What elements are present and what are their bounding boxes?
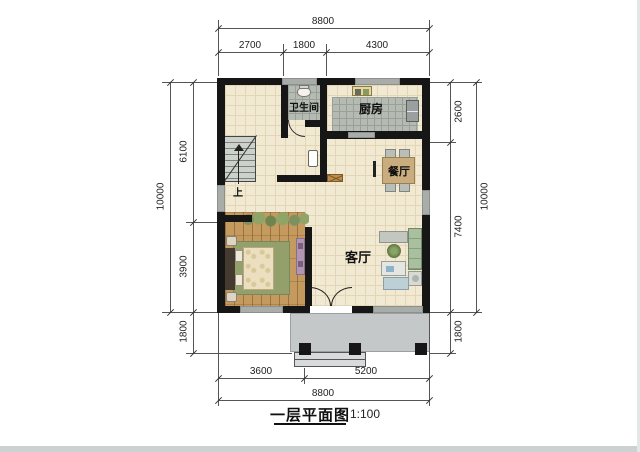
window-bottom-living — [373, 306, 423, 313]
dim-top-seg3: 4300 — [352, 40, 402, 51]
exterior-wall-bottom — [217, 306, 240, 313]
fridge-icon — [406, 100, 419, 122]
window-top-left — [282, 78, 317, 85]
dining-chair — [385, 183, 396, 192]
window-right-living — [422, 190, 430, 215]
hall-wall-vertical — [320, 127, 327, 182]
bathroom-label: 卫生间 — [283, 99, 325, 114]
dim-left-seg1: 6100 — [179, 122, 190, 182]
dim-left-total: 10000 — [156, 167, 167, 227]
drawing-title: 一层平面图 — [268, 404, 352, 425]
toilet-tank — [299, 85, 309, 89]
dim-top-seg2: 1800 — [279, 40, 329, 51]
dim-top-total: 8800 — [298, 16, 348, 27]
bathroom-wall-bottom — [305, 120, 327, 127]
extension-line — [218, 313, 219, 406]
stair-up-label: 上 — [228, 184, 248, 199]
dining-sideboard — [373, 161, 376, 177]
nightstand — [226, 236, 237, 246]
porch-column-right — [415, 343, 427, 355]
entry-cabinet — [327, 174, 343, 182]
planter-divider — [243, 212, 309, 227]
pillow — [235, 250, 243, 262]
stair-arrow-line — [238, 148, 239, 184]
extension-line — [429, 313, 430, 406]
bed — [243, 247, 274, 290]
extension-line — [430, 353, 456, 354]
dim-right-total: 10000 — [480, 167, 491, 227]
hall-wall-horizontal — [277, 175, 327, 182]
dimension-line-left-total — [170, 82, 171, 312]
extension-line — [186, 353, 292, 354]
stair-arrow-head — [234, 144, 244, 151]
bedroom-wall-top — [225, 215, 252, 222]
exterior-wall-bottom — [352, 306, 373, 313]
living-plant — [387, 244, 401, 258]
dim-top-seg1: 2700 — [225, 40, 275, 51]
kitchen-label: 厨房 — [346, 100, 396, 117]
dim-left-seg2: 3900 — [179, 237, 190, 297]
dim-bottom-seg2: 5200 — [341, 366, 391, 377]
dim-right-seg3: 1800 — [454, 302, 465, 362]
side-table — [408, 271, 422, 286]
dimension-line-bottom-total — [218, 400, 429, 401]
dim-bottom-seg1: 3600 — [236, 366, 286, 377]
wardrobe-cabinet — [296, 238, 305, 275]
coffee-table — [381, 261, 406, 276]
window-left-stair — [217, 185, 225, 212]
title-underline — [274, 423, 346, 425]
dining-label: 餐厅 — [378, 163, 420, 179]
bed-headboard — [225, 248, 235, 290]
window-bottom-bedroom — [240, 306, 283, 313]
nightstand — [226, 292, 237, 302]
exterior-wall-bottom — [283, 306, 310, 313]
dim-left-seg3: 1800 — [179, 302, 190, 362]
stove-icon — [352, 86, 372, 96]
porch-column-left — [299, 343, 311, 355]
sofa-bottom — [383, 277, 409, 290]
sofa-top — [379, 231, 408, 243]
dim-right-seg1: 2600 — [454, 82, 465, 142]
hall-door-panel — [308, 150, 318, 167]
dining-chair — [399, 183, 410, 192]
dimension-line-bottom-segments — [218, 378, 429, 379]
dimension-line-top-total — [218, 28, 429, 29]
dimension-line-right-total — [476, 82, 477, 312]
kitchen-wall-bottom — [327, 131, 426, 139]
image-bottom-border — [0, 446, 640, 452]
sofa-right — [408, 228, 422, 270]
porch-column-middle — [349, 343, 361, 355]
kitchen-sliding-door — [348, 132, 375, 138]
window-top-kitchen — [355, 78, 400, 85]
extension-line — [430, 142, 456, 143]
floor-plan-canvas: 上 餐厅 — [0, 0, 640, 452]
dim-right-seg2: 7400 — [454, 197, 465, 257]
pillow — [235, 274, 243, 286]
living-label: 客厅 — [333, 247, 383, 266]
drawing-scale: 1:100 — [350, 407, 390, 421]
dim-bottom-total: 8800 — [298, 388, 348, 399]
